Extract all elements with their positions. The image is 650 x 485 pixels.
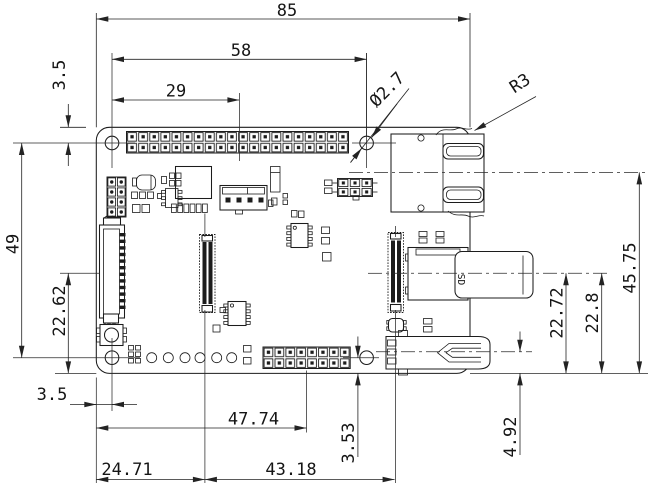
sd-card-label: SD: [455, 274, 466, 286]
dim-camera-from-left: 24.71: [96, 460, 205, 480]
dim-label-29: 29: [166, 82, 186, 102]
smd-components: [132, 173, 305, 332]
usb-connector: [386, 331, 490, 376]
bottom-header-2x8: [263, 347, 350, 369]
soic8-chip-lower: [224, 302, 250, 326]
drawing-canvas: SD 85: [0, 0, 650, 485]
audio-video-connector: [220, 186, 273, 215]
callout-corner-radius: R3: [475, 70, 537, 131]
dim-overall-width: 85: [96, 1, 470, 127]
capacitor: [271, 167, 281, 206]
dim-label-3.5-bottom: 3.5: [37, 385, 68, 405]
dim-half-span: 29: [112, 82, 239, 102]
dim-label-22.8: 22.8: [583, 293, 603, 334]
microsd-slot: SD: [406, 248, 534, 301]
dim-label-85: 85: [277, 1, 297, 21]
dim-label-24.71: 24.71: [101, 460, 152, 480]
push-button: [97, 325, 127, 346]
soic8-chip-upper: [287, 224, 331, 262]
dim-hole-top-offset: 3.5: [50, 60, 86, 166]
dim-header-from-left: 47.74: [96, 410, 306, 430]
dim-label-47.74: 47.74: [228, 410, 279, 430]
dim-label-hole-diameter: Ø2.7: [366, 68, 409, 111]
dim-label-4.92: 4.92: [501, 417, 521, 458]
dim-label-45.75: 45.75: [621, 242, 641, 293]
csi-camera-connector: [200, 235, 216, 313]
dim-label-3.53: 3.53: [339, 423, 359, 464]
jumper-header-2x3: [325, 179, 378, 201]
dim-hole-left-offset: 3.5: [37, 385, 137, 405]
dim-sd-from-bottom-b: 22.8: [583, 273, 603, 373]
dim-dsi-from-bottom: 22.62: [50, 273, 70, 373]
dim-usb-from-bottom: 4.92: [501, 332, 521, 458]
dim-hole-span-y: 49: [4, 143, 24, 358]
dim-connector-from-camera: 43.18: [205, 460, 395, 480]
dim-ethernet-from-bottom: 45.75: [621, 172, 641, 373]
io-header-2x4: [107, 177, 126, 217]
dsi-display-connector: [100, 216, 126, 325]
dim-sd-from-bottom-a: 22.72: [548, 273, 568, 373]
pcb-dimension-drawing: SD 85: [0, 0, 650, 485]
crystal-oscillator: [387, 319, 432, 333]
test-pads-row: [129, 346, 252, 365]
dim-label-22.62: 22.62: [50, 285, 70, 336]
dim-label-43.18: 43.18: [265, 460, 316, 480]
dim-label-corner-radius: R3: [506, 70, 534, 98]
dim-label-49: 49: [4, 234, 24, 254]
dim-label-22.72: 22.72: [548, 287, 568, 338]
dim-label-58: 58: [231, 41, 251, 61]
gpio-header: [127, 132, 349, 154]
dim-label-3.5-top: 3.5: [50, 60, 70, 91]
